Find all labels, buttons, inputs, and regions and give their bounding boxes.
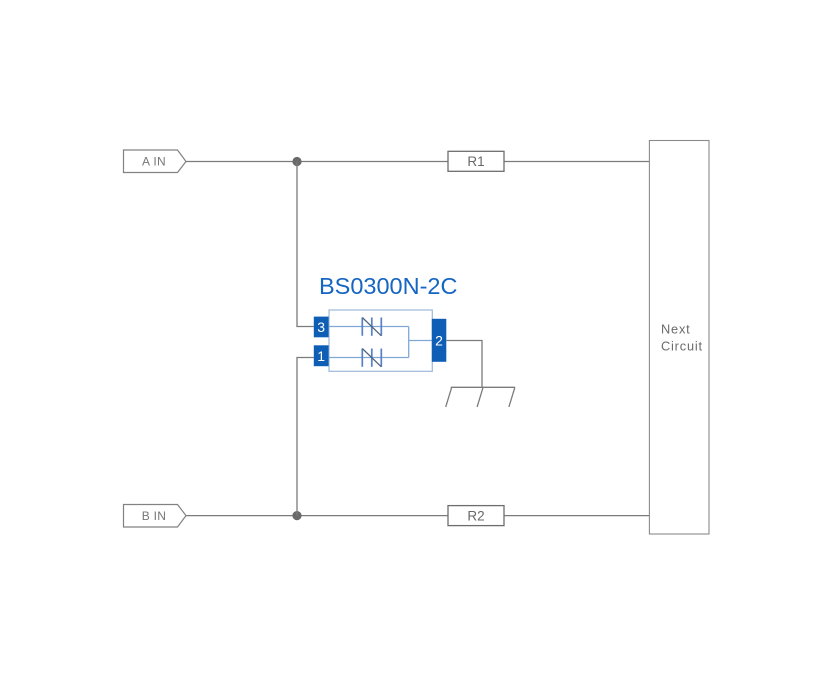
svg-text:Circuit: Circuit: [661, 339, 703, 354]
svg-text:2: 2: [435, 332, 443, 348]
svg-text:Next: Next: [661, 322, 691, 337]
svg-text:R2: R2: [467, 508, 484, 523]
svg-text:3: 3: [317, 319, 325, 335]
svg-text:1: 1: [317, 348, 325, 364]
svg-text:B IN: B IN: [142, 509, 167, 523]
svg-text:R1: R1: [467, 154, 484, 169]
svg-text:BS0300N-2C: BS0300N-2C: [319, 273, 457, 299]
svg-text:A IN: A IN: [142, 155, 166, 169]
